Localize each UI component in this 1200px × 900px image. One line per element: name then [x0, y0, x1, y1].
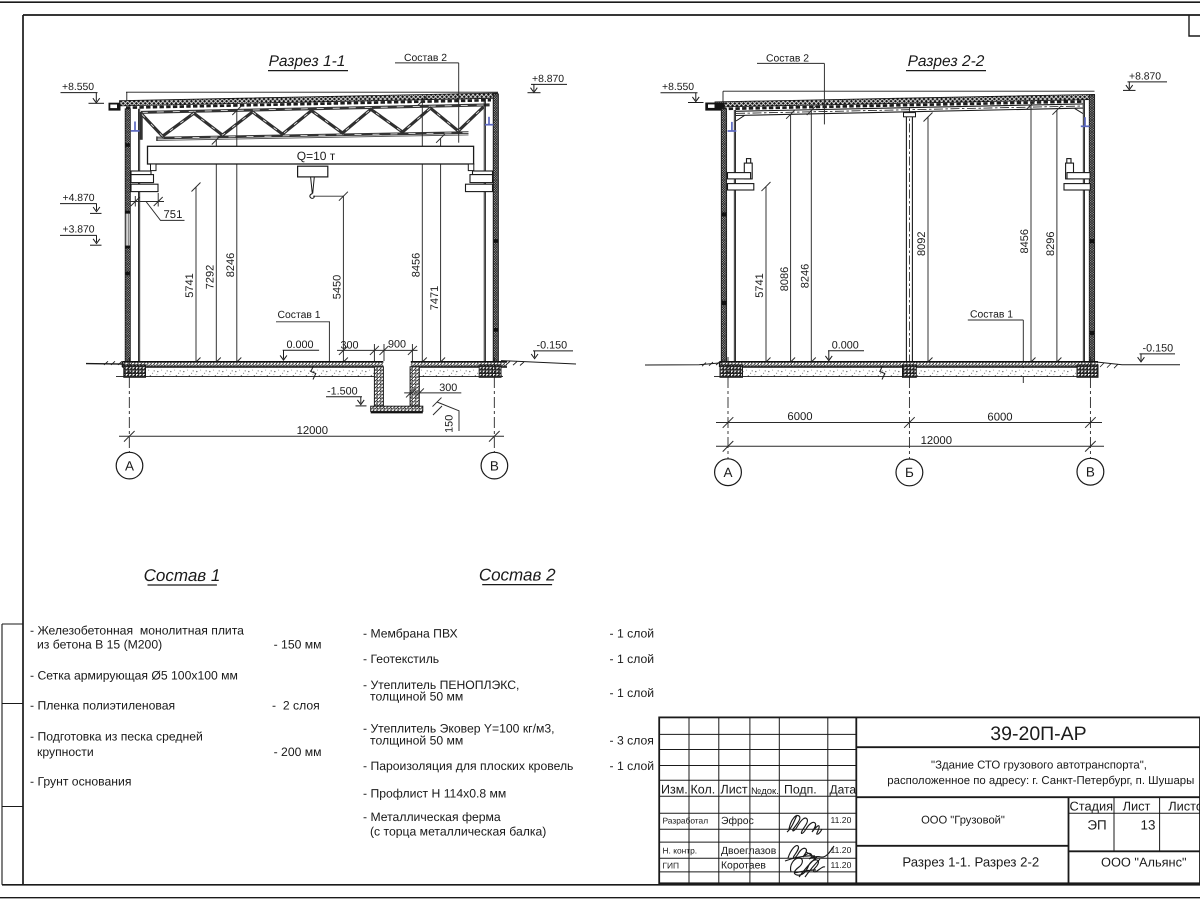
- svg-text:- Мембрана ПВХ: - Мембрана ПВХ: [363, 627, 458, 641]
- svg-text:Лист: Лист: [1123, 799, 1151, 814]
- svg-text:5450: 5450: [332, 275, 344, 299]
- svg-text:№док.: №док.: [751, 786, 779, 797]
- svg-text:Состав 2: Состав 2: [766, 54, 809, 65]
- svg-text:300: 300: [439, 382, 457, 394]
- svg-text:6000: 6000: [787, 411, 812, 423]
- svg-text:расположенное по адресу: г. Са: расположенное по адресу: г. Санкт-Петерб…: [887, 775, 1194, 787]
- svg-text:5741: 5741: [754, 273, 766, 297]
- svg-text:5741: 5741: [184, 273, 196, 297]
- svg-text:А: А: [125, 458, 134, 473]
- svg-text:+8.550: +8.550: [662, 82, 694, 93]
- svg-text:- 1 слой: - 1 слой: [610, 652, 655, 666]
- svg-text:- Профлист Н 114x0.8 мм: - Профлист Н 114x0.8 мм: [363, 786, 506, 800]
- svg-text:- Металлическая ферма: - Металлическая ферма: [363, 810, 501, 824]
- svg-text:из бетона В 15 (М200): из бетона В 15 (М200): [37, 637, 162, 651]
- svg-text:Листов: Листов: [1168, 799, 1200, 814]
- svg-text:751: 751: [164, 209, 183, 221]
- svg-text:(с торца металлическая балка): (с торца металлическая балка): [370, 824, 546, 838]
- svg-text:ЭП: ЭП: [1087, 818, 1106, 833]
- svg-text:Стадия: Стадия: [1069, 799, 1113, 814]
- svg-text:8092: 8092: [916, 231, 928, 255]
- svg-text:39-20П-АР: 39-20П-АР: [990, 723, 1086, 745]
- svg-text:Состав 1: Состав 1: [144, 566, 221, 585]
- svg-text:Н. контр.: Н. контр.: [663, 845, 698, 855]
- svg-text:+8.870: +8.870: [532, 74, 564, 85]
- svg-text:Состав 1: Состав 1: [970, 310, 1013, 321]
- svg-text:- 2 слоя: - 2 слоя: [272, 698, 320, 712]
- svg-text:- Подготовка из песка средней: - Подготовка из песка средней: [30, 729, 203, 743]
- svg-text:- 3 слоя: - 3 слоя: [610, 733, 654, 747]
- svg-text:Состав 2: Состав 2: [479, 566, 556, 585]
- svg-text:+8.550: +8.550: [62, 82, 94, 93]
- svg-text:7471: 7471: [429, 286, 441, 310]
- svg-text:8246: 8246: [225, 253, 237, 277]
- svg-text:ООО "Грузовой": ООО "Грузовой": [921, 815, 1005, 827]
- svg-text:Разрез 1-1: Разрез 1-1: [269, 53, 346, 70]
- svg-text:-0.150: -0.150: [537, 339, 568, 351]
- svg-text:- Грунт основания: - Грунт основания: [30, 775, 131, 789]
- svg-text:+8.870: +8.870: [1129, 71, 1161, 82]
- svg-text:Коротаев: Коротаев: [721, 861, 766, 872]
- svg-text:Состав 1: Состав 1: [278, 310, 321, 321]
- svg-text:Изм.: Изм.: [661, 782, 688, 796]
- svg-text:В: В: [1086, 465, 1095, 480]
- svg-text:- Железобетонная монолитная п: - Железобетонная монолитная плита: [30, 624, 244, 638]
- svg-text:900: 900: [388, 339, 406, 351]
- svg-text:ООО "Альянс": ООО "Альянс": [1101, 854, 1187, 869]
- svg-text:Лист: Лист: [721, 782, 748, 796]
- svg-text:7292: 7292: [205, 265, 217, 289]
- svg-text:- 1 слой: - 1 слой: [610, 759, 655, 773]
- svg-text:Кол.: Кол.: [691, 782, 716, 796]
- svg-text:-0.150: -0.150: [1143, 343, 1174, 355]
- svg-text:8296: 8296: [1045, 231, 1057, 255]
- svg-text:11.20: 11.20: [831, 860, 852, 870]
- svg-text:- 1 слой: - 1 слой: [610, 627, 655, 641]
- svg-text:А: А: [723, 465, 732, 480]
- svg-text:толщиной 50 мм: толщиной 50 мм: [370, 733, 463, 747]
- svg-text:8086: 8086: [779, 267, 791, 291]
- svg-text:8246: 8246: [800, 264, 812, 288]
- svg-text:"Здание СТО грузового автотран: "Здание СТО грузового автотранспорта",: [931, 759, 1147, 771]
- svg-text:8456: 8456: [1019, 229, 1031, 253]
- svg-text:Б: Б: [905, 465, 914, 480]
- svg-text:Разрез 1-1. Разрез 2-2: Разрез 1-1. Разрез 2-2: [902, 854, 1039, 869]
- svg-text:Разрез 2-2: Разрез 2-2: [908, 53, 985, 70]
- svg-text:Дата: Дата: [830, 782, 857, 796]
- svg-text:300: 300: [340, 339, 358, 351]
- svg-text:Подп.: Подп.: [784, 782, 817, 796]
- svg-text:- Геотекстиль: - Геотекстиль: [363, 652, 439, 666]
- svg-text:крупности: крупности: [37, 745, 94, 759]
- svg-text:+3.870: +3.870: [63, 225, 95, 236]
- svg-text:0.000: 0.000: [832, 340, 859, 352]
- svg-text:- Пароизоляция для плоских кро: - Пароизоляция для плоских кровель: [363, 759, 573, 773]
- svg-text:Эфрос: Эфрос: [721, 816, 754, 827]
- svg-text:+4.870: +4.870: [63, 193, 95, 204]
- svg-text:Состав 2: Состав 2: [404, 53, 447, 64]
- svg-text:Двоеглазов: Двоеглазов: [721, 846, 777, 857]
- svg-text:8456: 8456: [411, 253, 423, 277]
- svg-text:0.000: 0.000: [287, 339, 314, 351]
- svg-text:12000: 12000: [297, 425, 328, 437]
- svg-text:- 150 мм: - 150 мм: [274, 637, 322, 651]
- svg-text:-1.500: -1.500: [327, 386, 358, 398]
- svg-text:В: В: [490, 458, 499, 473]
- svg-text:Q=10 т: Q=10 т: [297, 149, 336, 163]
- svg-text:- Сетка армирующая Ø5 100x100: - Сетка армирующая Ø5 100x100 мм: [30, 669, 238, 683]
- svg-text:- Пленка полиэтиленовая: - Пленка полиэтиленовая: [30, 698, 175, 712]
- svg-text:150: 150: [443, 415, 455, 433]
- svg-text:- 200 мм: - 200 мм: [274, 745, 322, 759]
- svg-text:12000: 12000: [921, 435, 952, 447]
- svg-text:13: 13: [1141, 818, 1156, 833]
- svg-text:- 1 слой: - 1 слой: [610, 686, 655, 700]
- svg-text:6000: 6000: [987, 411, 1012, 423]
- svg-text:11.20: 11.20: [831, 815, 852, 825]
- svg-text:Разработал: Разработал: [663, 815, 709, 825]
- svg-text:ГИП: ГИП: [663, 860, 680, 870]
- svg-text:толщиной 50 мм: толщиной 50 мм: [370, 690, 463, 704]
